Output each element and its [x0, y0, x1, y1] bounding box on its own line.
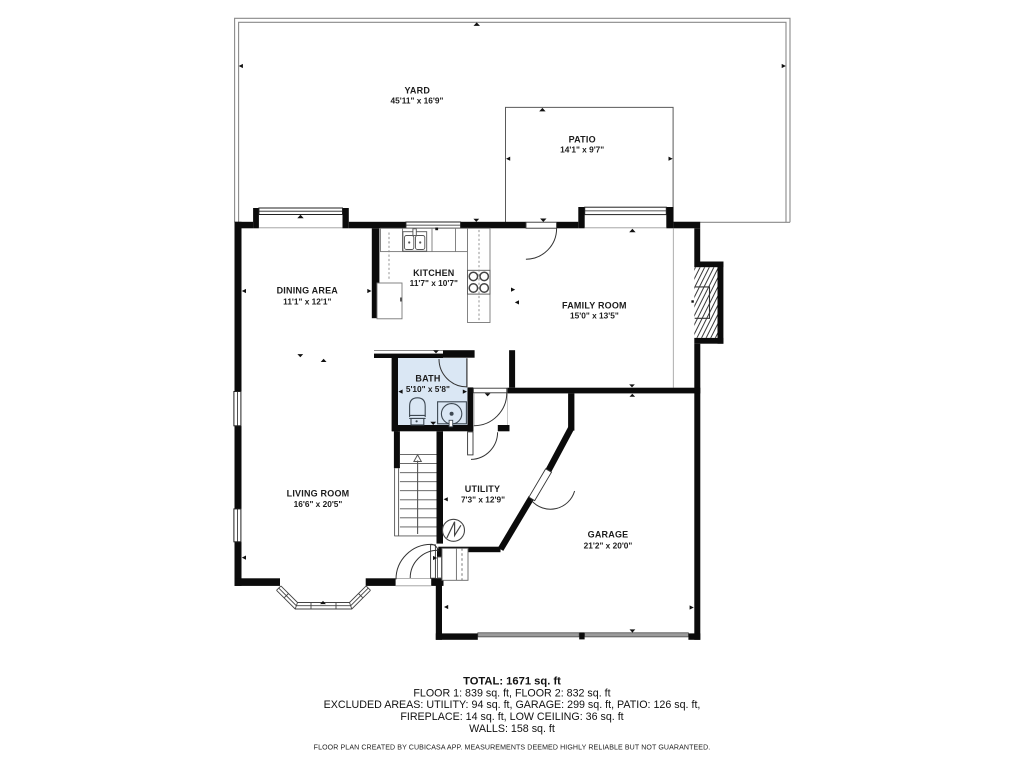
svg-text:PATIO: PATIO [569, 135, 596, 145]
svg-text:7'3" x 12'9": 7'3" x 12'9" [461, 494, 505, 504]
svg-text:14'1" x 9'7": 14'1" x 9'7" [560, 145, 604, 155]
svg-text:TOTAL: 1671 sq. ft: TOTAL: 1671 sq. ft [463, 676, 561, 688]
svg-text:11'7" x 10'7": 11'7" x 10'7" [410, 278, 458, 288]
svg-text:FLOOR 1: 839 sq. ft, FLOOR 2:: FLOOR 1: 839 sq. ft, FLOOR 2: 832 sq. ft [413, 687, 610, 699]
svg-text:21'2" x 20'0": 21'2" x 20'0" [584, 540, 633, 550]
svg-text:DINING AREA: DINING AREA [277, 285, 339, 295]
svg-text:11'1" x 12'1": 11'1" x 12'1" [283, 296, 331, 306]
svg-text:UTILITY: UTILITY [465, 484, 500, 494]
svg-text:45'11" x 16'9": 45'11" x 16'9" [391, 96, 444, 106]
svg-text:15'0" x 13'5": 15'0" x 13'5" [570, 310, 619, 320]
svg-text:YARD: YARD [405, 86, 431, 96]
svg-text:WALLS: 158 sq. ft: WALLS: 158 sq. ft [469, 723, 555, 735]
svg-text:5'10" x 5'8": 5'10" x 5'8" [406, 384, 450, 394]
svg-text:GARAGE: GARAGE [588, 530, 629, 540]
svg-text:KITCHEN: KITCHEN [413, 268, 454, 278]
svg-text:FAMILY ROOM: FAMILY ROOM [562, 301, 627, 311]
svg-text:EXCLUDED AREAS: UTILITY: 94 sq: EXCLUDED AREAS: UTILITY: 94 sq. ft, GARA… [324, 699, 701, 711]
svg-text:FLOOR PLAN CREATED BY CUBICASA: FLOOR PLAN CREATED BY CUBICASA APP. MEAS… [314, 744, 711, 751]
svg-text:FIREPLACE: 14 sq. ft, LOW CEIL: FIREPLACE: 14 sq. ft, LOW CEILING: 36 sq… [400, 711, 623, 723]
svg-text:BATH: BATH [415, 374, 440, 384]
svg-text:16'6" x 20'5": 16'6" x 20'5" [294, 499, 343, 509]
svg-text:LIVING ROOM: LIVING ROOM [287, 489, 350, 499]
